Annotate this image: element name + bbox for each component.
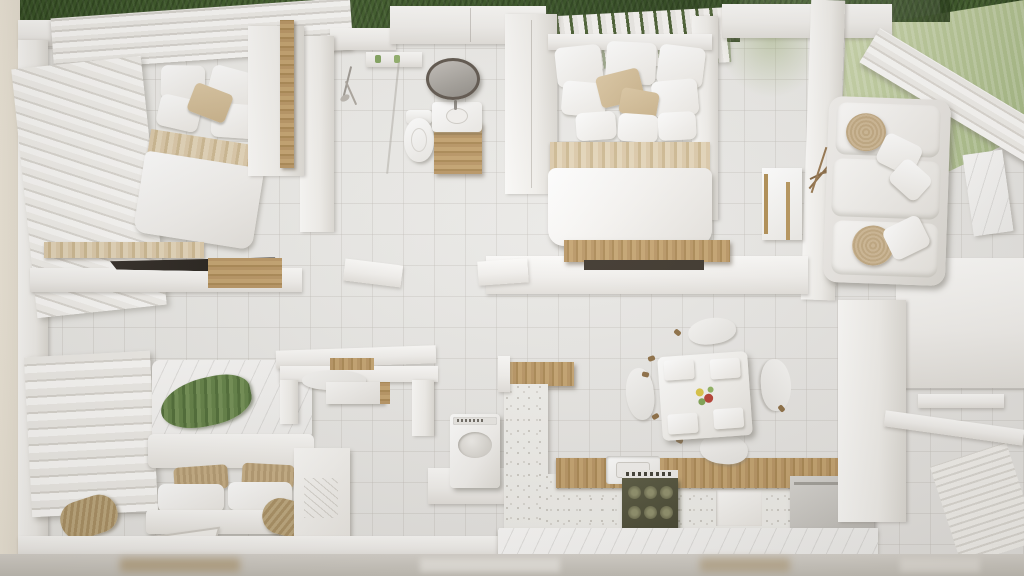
bed-master	[554, 38, 706, 238]
wood-door-panel	[280, 20, 294, 168]
dining-chair-top	[686, 315, 737, 347]
chair-leg-tip	[673, 328, 682, 336]
shower-glass-divider	[386, 62, 400, 174]
foot-bench-shadow	[584, 260, 704, 270]
room-bedroom1	[30, 40, 310, 280]
washing-machine	[450, 414, 500, 488]
marble-rug	[962, 150, 1013, 237]
floorplan-render	[0, 0, 1024, 576]
room-bathroom	[334, 40, 544, 220]
desk-wood-inlay	[330, 358, 374, 370]
hall-shelf-b	[477, 258, 529, 285]
toilet	[404, 110, 434, 162]
chair-leg-tip	[647, 355, 655, 362]
partition-wood-cap	[504, 362, 574, 386]
accordion-closet	[24, 351, 158, 517]
desk-wood-block	[208, 258, 282, 288]
floor-slab-reflection	[0, 554, 1024, 576]
drawer-wood-side	[380, 382, 390, 404]
sideboard	[294, 448, 350, 546]
marble-plinth	[498, 528, 878, 556]
sofa	[823, 96, 951, 286]
sink-faucet	[454, 100, 457, 110]
shelf-rail-right	[918, 394, 1004, 408]
centerpiece-flowers	[693, 385, 718, 409]
bed-duvet	[133, 150, 264, 250]
round-mirror	[426, 58, 480, 100]
washer-lid	[458, 432, 492, 458]
room-dining	[612, 310, 812, 480]
dining-chair-left	[623, 367, 656, 422]
wall-shelf-wood	[44, 242, 204, 258]
dining-table	[657, 351, 753, 441]
console-brass-leg2	[786, 182, 790, 240]
console-brass-leg	[764, 174, 768, 234]
grass-light-spill	[718, 38, 808, 98]
foot-bench	[564, 240, 730, 262]
desk-leg-left	[280, 380, 298, 424]
desk-drawer-unit	[326, 382, 384, 404]
shower-head	[339, 93, 351, 103]
wardrobe-bedroom1	[248, 26, 304, 176]
partition-side	[498, 356, 510, 392]
gas-range	[622, 478, 678, 530]
wall-seam	[470, 8, 471, 42]
bed-duvet	[548, 168, 712, 246]
cabinet-door	[716, 490, 762, 526]
sink-basin	[446, 108, 468, 124]
bottle-green-1	[375, 55, 381, 63]
room-living	[756, 90, 1024, 300]
chair-leg-tip	[651, 413, 660, 421]
dining-chair-right	[759, 358, 793, 412]
